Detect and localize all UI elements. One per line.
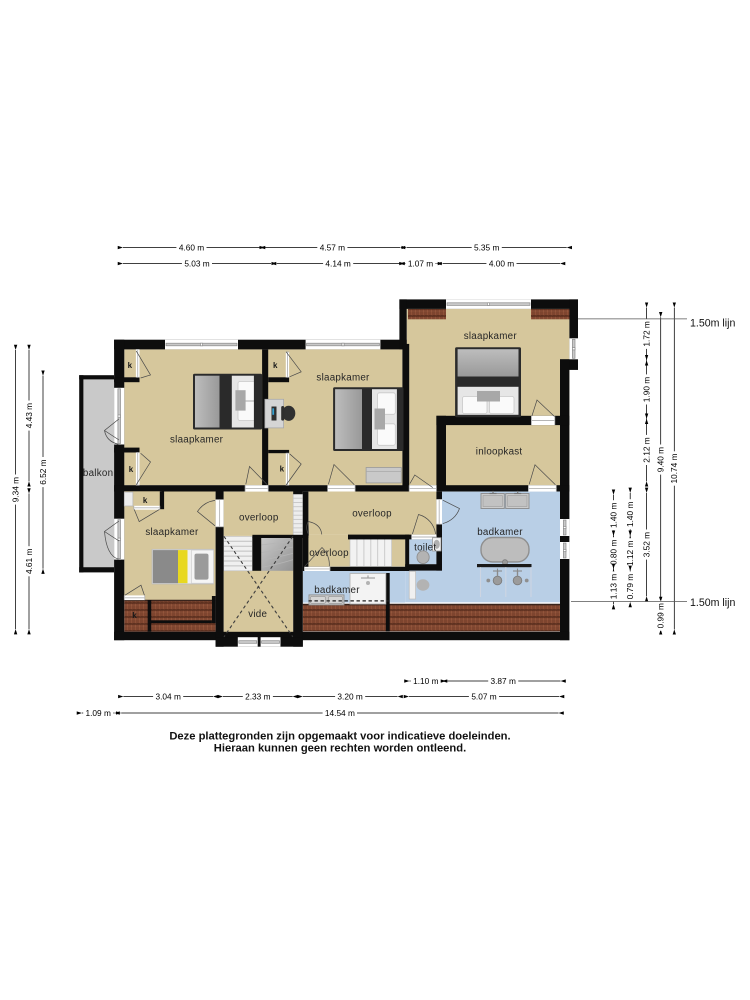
- svg-text:k: k: [143, 496, 148, 505]
- svg-text:1.40 m: 1.40 m: [608, 503, 618, 528]
- svg-text:4.60 m: 4.60 m: [179, 242, 204, 252]
- svg-text:badkamer: badkamer: [477, 527, 523, 538]
- svg-text:2.33 m: 2.33 m: [245, 691, 270, 701]
- svg-text:1.10 m: 1.10 m: [413, 676, 438, 686]
- svg-text:1.50m lijn: 1.50m lijn: [690, 597, 735, 609]
- svg-text:0.80 m: 0.80 m: [608, 540, 618, 565]
- svg-text:1.09 m: 1.09 m: [86, 708, 111, 718]
- svg-text:2.12 m: 2.12 m: [642, 437, 652, 462]
- svg-text:slaapkamer: slaapkamer: [145, 527, 199, 538]
- svg-text:balkon: balkon: [83, 468, 113, 479]
- svg-text:10.74 m: 10.74 m: [669, 453, 679, 483]
- svg-text:3.20 m: 3.20 m: [337, 691, 362, 701]
- svg-text:9.40 m: 9.40 m: [656, 447, 666, 472]
- svg-text:k: k: [280, 465, 285, 474]
- svg-text:Deze plattegronden zijn opgema: Deze plattegronden zijn opgemaakt voor i…: [169, 730, 510, 742]
- svg-text:6.52 m: 6.52 m: [38, 459, 48, 484]
- svg-text:badkamer: badkamer: [314, 585, 360, 596]
- svg-text:k: k: [128, 361, 133, 370]
- svg-text:overloop: overloop: [309, 548, 349, 559]
- svg-text:14.54 m: 14.54 m: [325, 708, 355, 718]
- svg-text:k: k: [129, 465, 134, 474]
- svg-text:4.61 m: 4.61 m: [24, 549, 34, 574]
- svg-text:1.13 m: 1.13 m: [608, 574, 618, 599]
- svg-text:overloop: overloop: [352, 509, 392, 520]
- svg-text:1.72 m: 1.72 m: [642, 321, 652, 346]
- svg-text:3.04 m: 3.04 m: [156, 691, 181, 701]
- svg-text:3.87 m: 3.87 m: [491, 676, 516, 686]
- svg-text:1.12 m: 1.12 m: [625, 541, 635, 566]
- svg-text:slaapkamer: slaapkamer: [316, 373, 370, 384]
- svg-text:inloopkast: inloopkast: [476, 447, 523, 458]
- svg-text:k: k: [273, 361, 278, 370]
- svg-text:4.00 m: 4.00 m: [489, 258, 514, 268]
- svg-text:4.43 m: 4.43 m: [24, 403, 34, 428]
- svg-text:0.99 m: 0.99 m: [656, 603, 666, 628]
- svg-text:1.50m lijn: 1.50m lijn: [690, 318, 735, 330]
- svg-text:toilet: toilet: [414, 543, 436, 554]
- svg-text:slaapkamer: slaapkamer: [464, 331, 518, 342]
- svg-text:4.57 m: 4.57 m: [320, 242, 345, 252]
- svg-text:0.79 m: 0.79 m: [625, 574, 635, 599]
- svg-text:5.07 m: 5.07 m: [471, 691, 496, 701]
- svg-text:overloop: overloop: [239, 512, 279, 523]
- svg-text:3.52 m: 3.52 m: [642, 532, 652, 557]
- svg-text:5.35 m: 5.35 m: [474, 242, 499, 252]
- svg-text:1.90 m: 1.90 m: [642, 377, 652, 402]
- svg-text:4.14 m: 4.14 m: [325, 258, 350, 268]
- svg-text:1.40 m: 1.40 m: [625, 502, 635, 527]
- svg-text:k: k: [132, 611, 137, 620]
- svg-text:5.03 m: 5.03 m: [184, 258, 209, 268]
- svg-text:vide: vide: [248, 609, 267, 620]
- svg-text:9.34 m: 9.34 m: [10, 477, 20, 502]
- svg-text:1.07 m: 1.07 m: [408, 258, 433, 268]
- svg-text:slaapkamer: slaapkamer: [170, 435, 224, 446]
- svg-text:Hieraan kunnen geen rechten wo: Hieraan kunnen geen rechten worden ontle…: [214, 742, 466, 754]
